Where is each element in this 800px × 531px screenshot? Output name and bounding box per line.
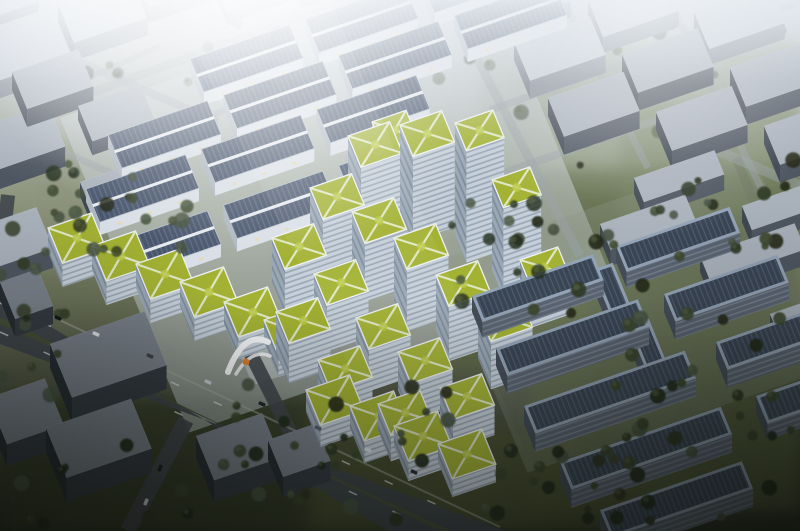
rendering-canvas xyxy=(0,0,800,531)
aerial-rendering-industrial-park xyxy=(0,0,800,531)
vignette-overlay xyxy=(0,0,800,531)
